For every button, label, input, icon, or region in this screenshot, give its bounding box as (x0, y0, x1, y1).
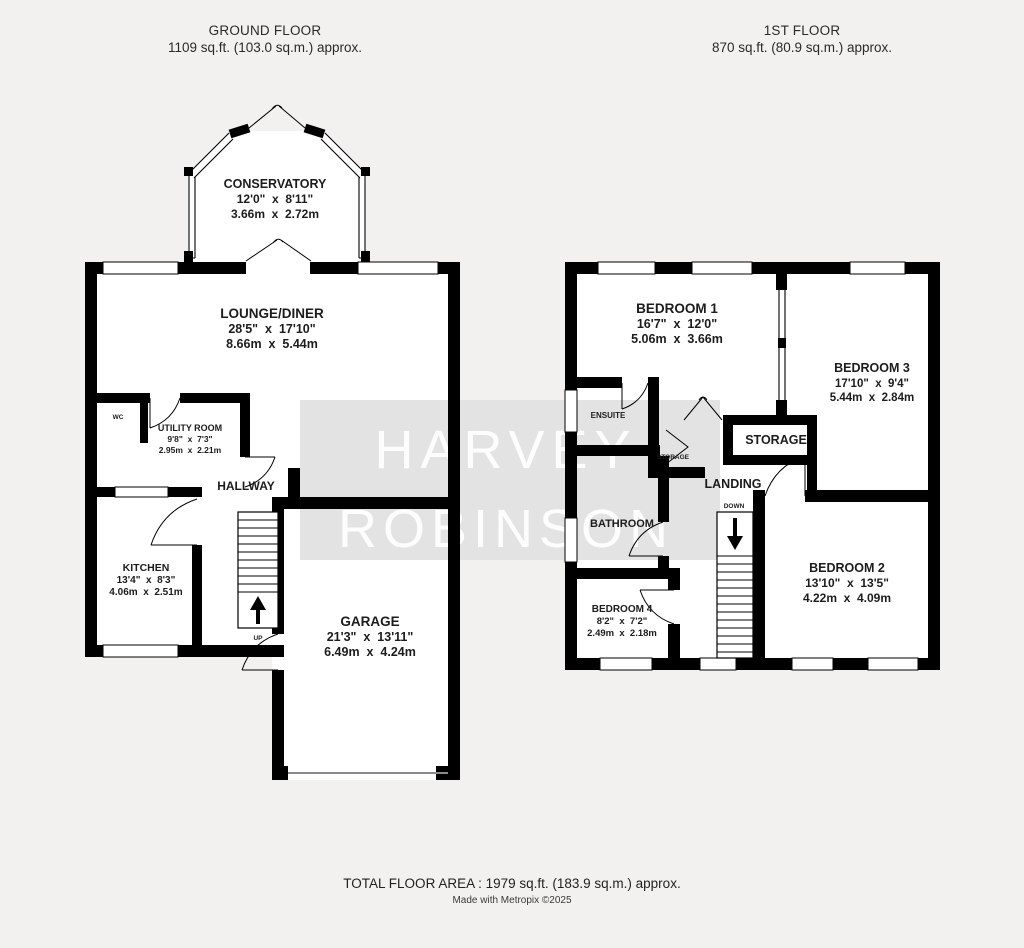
window (792, 658, 833, 670)
bedroom3-imperial: 17'10" x 9'4" (835, 378, 909, 390)
stairs-down: DOWN (717, 503, 753, 658)
utility-label: UTILITY ROOM (158, 423, 222, 433)
garage-label: GARAGE (340, 614, 399, 629)
window (565, 518, 577, 562)
bedroom2-metric: 4.22m x 4.09m (803, 591, 891, 605)
kitchen-label: KITCHEN (123, 562, 170, 574)
window (598, 262, 655, 274)
floorplan-page: GROUND FLOOR 1109 sq.ft. (103.0 sq.m.) a… (0, 0, 1024, 948)
hallway-label: HALLWAY (217, 479, 275, 493)
bedroom2-label: BEDROOM 2 (809, 561, 885, 575)
stairs-up: UP (238, 512, 278, 642)
window (692, 262, 752, 274)
metropix-credit: Made with Metropix ©2025 (0, 895, 1024, 906)
bedroom1-label: BEDROOM 1 (636, 301, 718, 316)
bathroom-label: BATHROOM (590, 518, 654, 530)
bedroom4-label: BEDROOM 4 (592, 604, 653, 615)
interior-opening (115, 487, 168, 497)
bedroom1-metric: 5.06m x 3.66m (631, 332, 723, 346)
bedroom4-metric: 2.49m x 2.18m (587, 628, 657, 639)
conservatory-imperial: 12'0" x 8'11" (237, 192, 313, 206)
bedroom3-metric: 5.44m x 2.84m (830, 392, 914, 404)
window (565, 390, 577, 432)
landing-label: LANDING (705, 477, 762, 491)
floorplan-svg: HARVEY ROBINSON (0, 0, 1024, 948)
kitchen-imperial: 13'4" x 8'3" (117, 575, 176, 586)
window (850, 262, 905, 274)
bedroom2-imperial: 13'10" x 13'5" (805, 576, 889, 590)
window (103, 262, 178, 274)
bedroom4-imperial: 8'2" x 7'2" (597, 616, 648, 627)
bedroom3-label: BEDROOM 3 (834, 361, 910, 375)
conservatory-metric: 3.66m x 2.72m (231, 207, 319, 221)
garage-metric: 6.49m x 4.24m (324, 645, 416, 659)
bedroom1-imperial: 16'7" x 12'0" (637, 317, 717, 331)
footer: TOTAL FLOOR AREA : 1979 sq.ft. (183.9 sq… (0, 876, 1024, 906)
window (868, 658, 918, 670)
window (103, 645, 178, 657)
garage-imperial: 21'3" x 13'11" (327, 630, 414, 644)
total-floor-area: TOTAL FLOOR AREA : 1979 sq.ft. (183.9 sq… (0, 876, 1024, 891)
utility-metric: 2.95m x 2.21m (159, 445, 222, 455)
stairs-up-label: UP (253, 635, 263, 642)
window (700, 658, 736, 670)
lounge-diner-label: LOUNGE/DINER (220, 306, 324, 321)
storage-label: STORAGE (745, 433, 807, 447)
utility-imperial: 9'8" x 7'3" (167, 434, 212, 444)
conservatory-label: CONSERVATORY (224, 177, 327, 191)
wc-label: WC (113, 414, 124, 421)
lounge-diner-imperial: 28'5" x 17'10" (228, 322, 315, 336)
window (358, 262, 438, 274)
ensuite-label: ENSUITE (591, 411, 626, 420)
stairs-down-label: DOWN (724, 503, 745, 510)
storage-small-label: STORAGE (657, 454, 690, 461)
window (600, 658, 652, 670)
kitchen-metric: 4.06m x 2.51m (109, 587, 182, 598)
lounge-diner-metric: 8.66m x 5.44m (226, 337, 318, 351)
